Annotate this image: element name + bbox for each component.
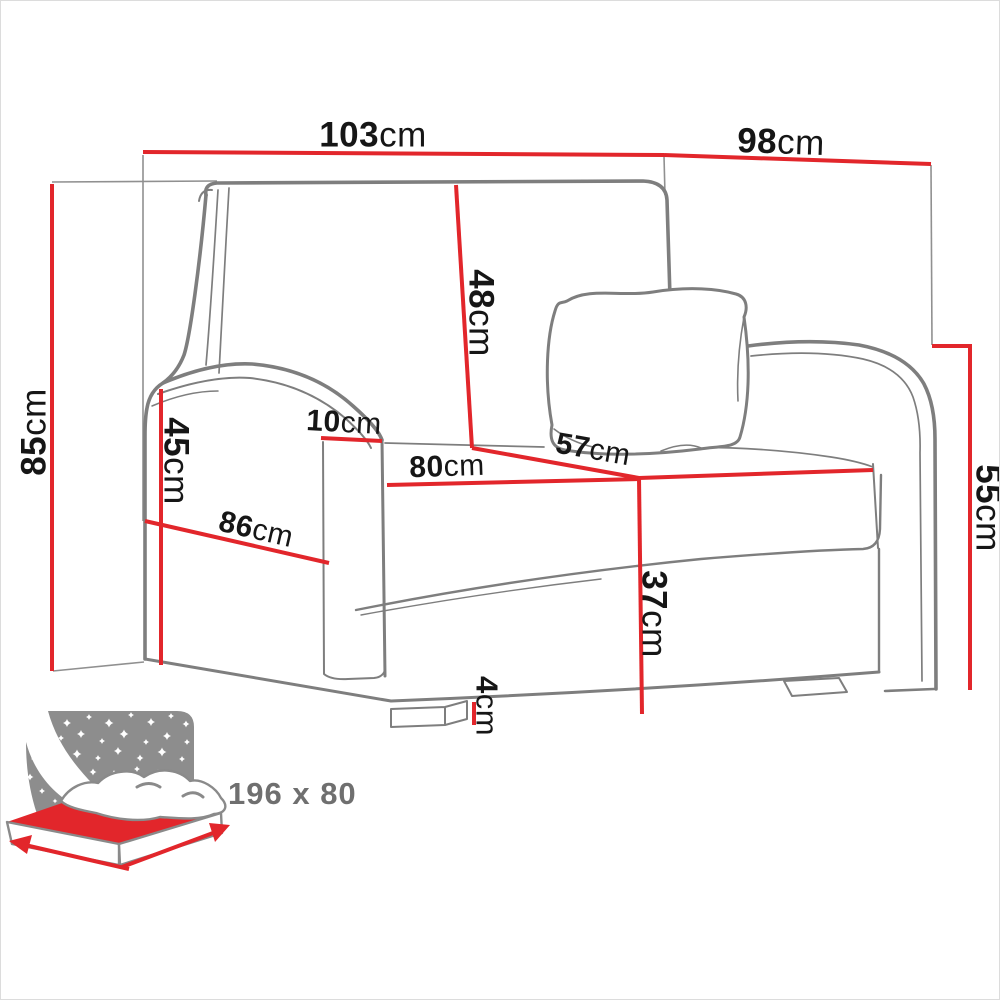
dimension-label-total-height: 85cm (17, 388, 52, 476)
armchair-sketch (145, 181, 936, 727)
dimension-label-seat-height: 37cm (637, 570, 672, 658)
dimension-label-right-armrest-height: 55cm (971, 464, 1000, 552)
right-armrest (748, 342, 936, 689)
dimension-label-side-width: 98cm (737, 123, 826, 161)
dimension-label-seat-width: 80cm (409, 451, 485, 484)
base-bottom-edge (145, 659, 879, 701)
dimension-label-foot-height: 4cm (472, 676, 503, 736)
seat-box (356, 475, 881, 610)
dimension-diagram: 103cm 98cm 85cm 48cm 45cm 10cm 80cm 57cm… (0, 0, 1000, 1000)
dimension-line-right-armrest-height (932, 346, 970, 690)
right-foot (784, 678, 847, 696)
sofa-bed-sleeping-area-icon (7, 711, 230, 869)
armchair-line-drawing (1, 1, 1000, 1000)
sleeping-area-size-label: 196 x 80 (228, 776, 357, 812)
backrest-outline (206, 181, 670, 297)
dimension-label-backrest-height: 48cm (464, 269, 499, 357)
dimension-label-armrest-thickness: 10cm (306, 406, 383, 440)
dimension-label-total-width: 103cm (319, 118, 427, 153)
dimension-label-left-armrest-height: 45cm (159, 417, 194, 505)
front-foot (391, 701, 467, 727)
